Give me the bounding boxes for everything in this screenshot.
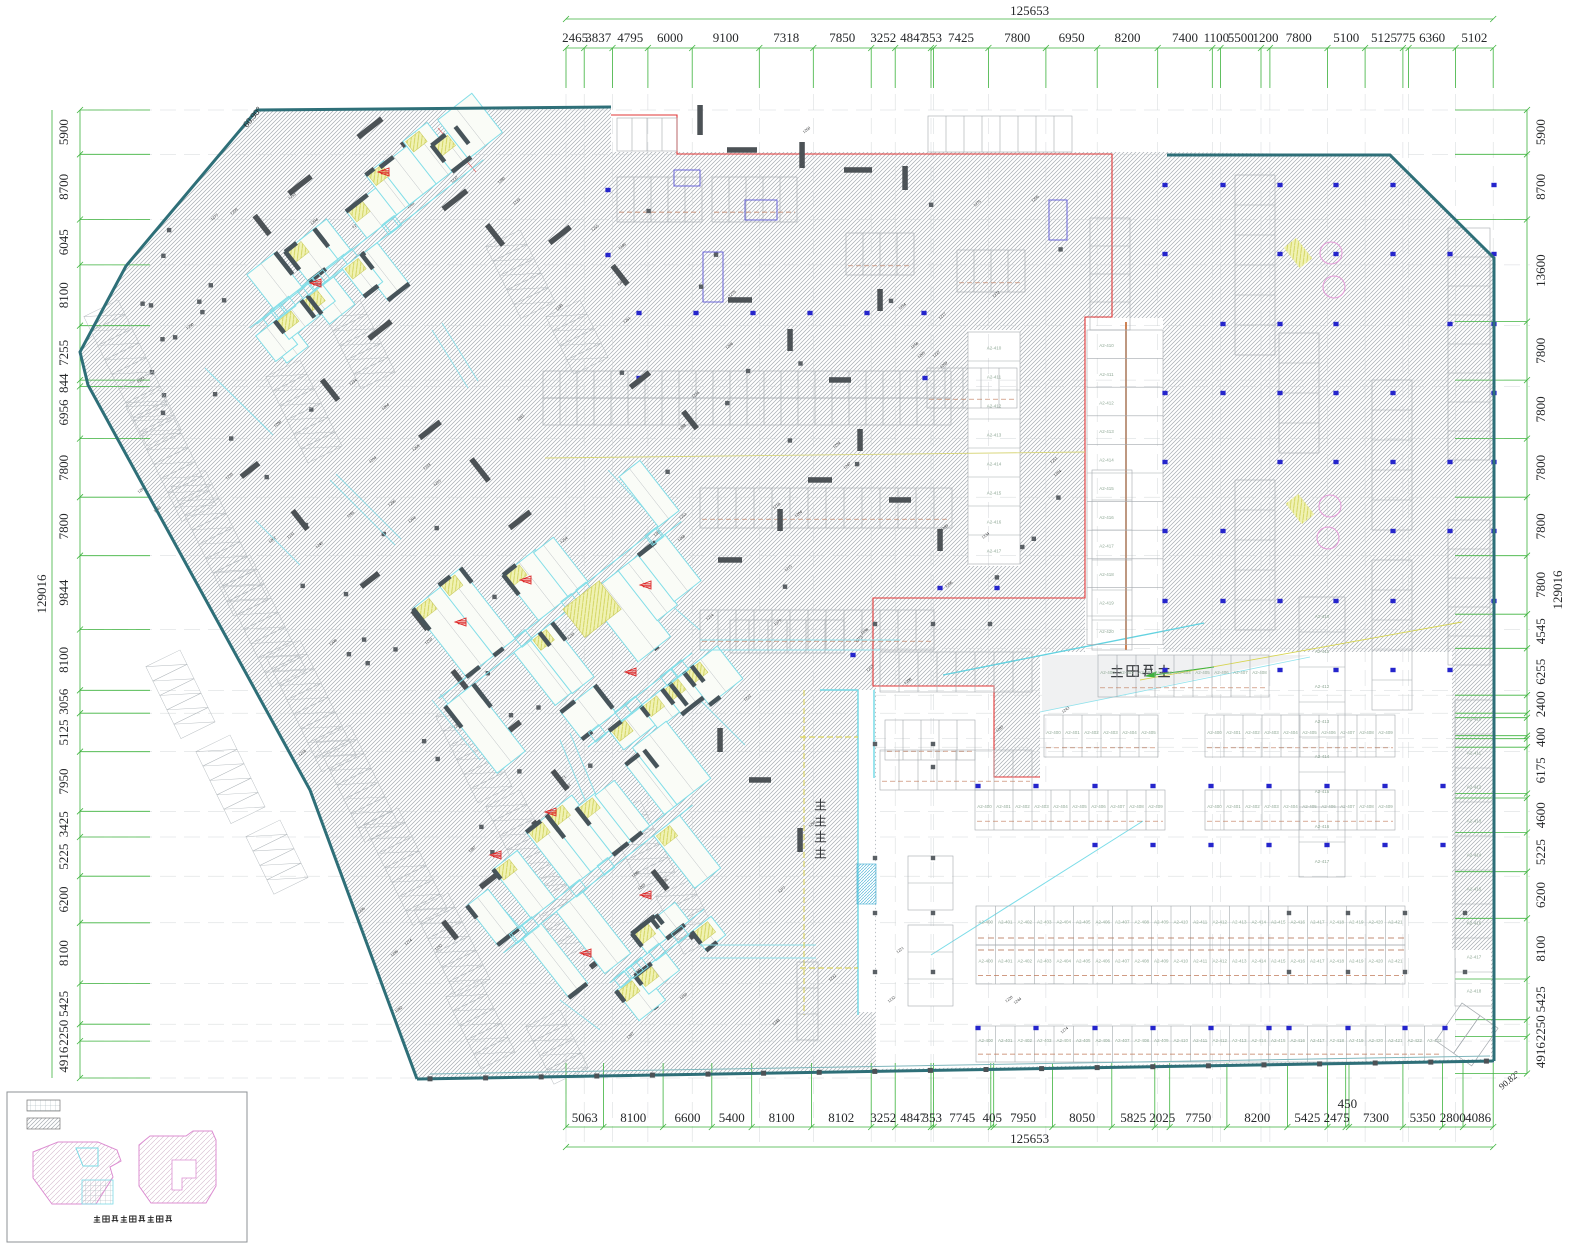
svg-text:A2-403: A2-403 bbox=[1034, 804, 1049, 809]
svg-text:5102: 5102 bbox=[1461, 30, 1487, 45]
svg-text:A2-412: A2-412 bbox=[1213, 1038, 1228, 1043]
svg-text:9100: 9100 bbox=[713, 30, 739, 45]
svg-text:A2-406: A2-406 bbox=[1321, 730, 1336, 735]
svg-text:5425: 5425 bbox=[1294, 1110, 1320, 1125]
svg-text:A2-412: A2-412 bbox=[1467, 784, 1482, 789]
svg-text:7300: 7300 bbox=[1363, 1110, 1389, 1125]
svg-text:A2-401: A2-401 bbox=[1226, 804, 1241, 809]
svg-text:A2-418: A2-418 bbox=[1467, 988, 1482, 993]
svg-text:A2-401: A2-401 bbox=[1065, 730, 1080, 735]
svg-text:A2-405: A2-405 bbox=[1076, 920, 1091, 925]
svg-text:8100: 8100 bbox=[56, 940, 71, 966]
svg-text:1100: 1100 bbox=[1204, 30, 1230, 45]
svg-text:A2-413: A2-413 bbox=[1467, 818, 1482, 823]
svg-text:7800: 7800 bbox=[1533, 338, 1548, 364]
svg-text:A2-414: A2-414 bbox=[1467, 852, 1482, 857]
svg-text:8100: 8100 bbox=[1533, 936, 1548, 962]
svg-text:A2-403: A2-403 bbox=[1037, 1038, 1052, 1043]
svg-text:A2-410: A2-410 bbox=[1174, 959, 1189, 964]
svg-text:A2-413: A2-413 bbox=[1315, 719, 1330, 724]
svg-text:5900: 5900 bbox=[1533, 119, 1548, 145]
svg-text:129016: 129016 bbox=[1550, 570, 1565, 610]
svg-text:A2-416: A2-416 bbox=[1467, 920, 1482, 925]
svg-text:A2-413: A2-413 bbox=[1232, 1038, 1247, 1043]
svg-text:7425: 7425 bbox=[948, 30, 974, 45]
svg-text:A2-412: A2-412 bbox=[1315, 684, 1330, 689]
svg-text:4916: 4916 bbox=[1533, 1042, 1548, 1069]
svg-text:A2-404: A2-404 bbox=[1057, 959, 1072, 964]
svg-text:A2-415: A2-415 bbox=[1271, 959, 1286, 964]
svg-text:A2-402: A2-402 bbox=[1245, 730, 1260, 735]
svg-text:6175: 6175 bbox=[1533, 757, 1548, 783]
svg-text:A2-416: A2-416 bbox=[1099, 515, 1114, 520]
svg-text:A2-405: A2-405 bbox=[1302, 804, 1317, 809]
svg-text:A2-406: A2-406 bbox=[1214, 670, 1229, 675]
svg-text:5125: 5125 bbox=[1371, 30, 1397, 45]
svg-text:A2-410: A2-410 bbox=[987, 345, 1002, 350]
svg-text:A2-419: A2-419 bbox=[1349, 1038, 1364, 1043]
svg-text:A2-402: A2-402 bbox=[1245, 804, 1260, 809]
svg-text:4545: 4545 bbox=[1533, 618, 1548, 644]
svg-text:125653: 125653 bbox=[1010, 3, 1049, 18]
svg-text:A2-417: A2-417 bbox=[1315, 859, 1330, 864]
svg-text:A2-404: A2-404 bbox=[1053, 804, 1068, 809]
svg-text:A2-420: A2-420 bbox=[1369, 920, 1384, 925]
svg-text:A2-405: A2-405 bbox=[1302, 730, 1317, 735]
svg-text:6200: 6200 bbox=[1533, 882, 1548, 908]
svg-text:7800: 7800 bbox=[1533, 572, 1548, 598]
svg-text:A2-401: A2-401 bbox=[996, 804, 1011, 809]
svg-text:2800: 2800 bbox=[1440, 1110, 1466, 1125]
svg-text:A2-413: A2-413 bbox=[1232, 920, 1247, 925]
svg-text:7800: 7800 bbox=[1286, 30, 1312, 45]
svg-text:A2-419: A2-419 bbox=[1349, 959, 1364, 964]
svg-text:5100: 5100 bbox=[1333, 30, 1359, 45]
svg-text:A2-410: A2-410 bbox=[1467, 716, 1482, 721]
svg-text:775: 775 bbox=[1396, 30, 1416, 45]
svg-text:A2-416: A2-416 bbox=[1291, 959, 1306, 964]
svg-text:A2-400: A2-400 bbox=[1207, 730, 1222, 735]
svg-text:7800: 7800 bbox=[1533, 396, 1548, 422]
svg-text:A2-417: A2-417 bbox=[987, 548, 1002, 553]
svg-text:A2-423: A2-423 bbox=[1427, 1038, 1442, 1043]
svg-text:8200: 8200 bbox=[1244, 1110, 1270, 1125]
svg-text:A2-416: A2-416 bbox=[987, 519, 1002, 524]
svg-text:6255: 6255 bbox=[1533, 659, 1548, 685]
svg-text:6000: 6000 bbox=[657, 30, 683, 45]
svg-text:A2-412: A2-412 bbox=[1213, 920, 1228, 925]
svg-text:A2-405: A2-405 bbox=[1076, 959, 1091, 964]
svg-text:7950: 7950 bbox=[1010, 1110, 1036, 1125]
svg-text:A2-407: A2-407 bbox=[1115, 959, 1130, 964]
svg-text:353: 353 bbox=[923, 1110, 943, 1125]
svg-text:5225: 5225 bbox=[1533, 839, 1548, 865]
svg-text:A2-404: A2-404 bbox=[1057, 1038, 1072, 1043]
svg-text:A2-405: A2-405 bbox=[1195, 670, 1210, 675]
svg-text:7745: 7745 bbox=[949, 1110, 975, 1125]
svg-text:A2-408: A2-408 bbox=[1252, 670, 1267, 675]
svg-text:A2-404: A2-404 bbox=[1122, 730, 1137, 735]
svg-text:A2-415: A2-415 bbox=[1315, 789, 1330, 794]
svg-text:5425: 5425 bbox=[1533, 986, 1548, 1012]
svg-text:7950: 7950 bbox=[56, 769, 71, 795]
svg-text:5400: 5400 bbox=[719, 1110, 745, 1125]
svg-text:A2-408: A2-408 bbox=[1129, 804, 1144, 809]
svg-text:A2-406: A2-406 bbox=[1096, 1038, 1111, 1043]
svg-text:A2-405: A2-405 bbox=[1141, 730, 1156, 735]
svg-text:A2-402: A2-402 bbox=[1018, 920, 1033, 925]
svg-text:A2-417: A2-417 bbox=[1467, 954, 1482, 959]
svg-text:A2-400: A2-400 bbox=[979, 920, 994, 925]
svg-text:2250: 2250 bbox=[56, 1020, 71, 1046]
svg-text:4086: 4086 bbox=[1465, 1110, 1492, 1125]
svg-text:A2-420: A2-420 bbox=[1369, 1038, 1384, 1043]
svg-text:6956: 6956 bbox=[56, 399, 71, 426]
svg-text:3425: 3425 bbox=[56, 811, 71, 837]
svg-text:A2-409: A2-409 bbox=[1154, 1038, 1169, 1043]
svg-text:6200: 6200 bbox=[56, 887, 71, 913]
svg-text:8102: 8102 bbox=[828, 1110, 854, 1125]
svg-text:A2-405: A2-405 bbox=[1076, 1038, 1091, 1043]
svg-text:5425: 5425 bbox=[56, 991, 71, 1017]
svg-text:8200: 8200 bbox=[1115, 30, 1141, 45]
svg-text:A2-407: A2-407 bbox=[1115, 920, 1130, 925]
svg-text:A2-402: A2-402 bbox=[1015, 804, 1030, 809]
svg-text:6045: 6045 bbox=[56, 229, 71, 255]
svg-text:125653: 125653 bbox=[1010, 1131, 1049, 1146]
svg-text:A2-402: A2-402 bbox=[1084, 730, 1099, 735]
svg-text:A2-421: A2-421 bbox=[1388, 959, 1403, 964]
svg-text:A2-411: A2-411 bbox=[1315, 649, 1330, 654]
svg-text:A2-400: A2-400 bbox=[979, 1038, 994, 1043]
svg-text:A2-414: A2-414 bbox=[1315, 754, 1330, 759]
svg-text:3252: 3252 bbox=[870, 1110, 896, 1125]
svg-text:A2-420: A2-420 bbox=[1099, 629, 1114, 634]
svg-text:6950: 6950 bbox=[1059, 30, 1085, 45]
svg-text:7850: 7850 bbox=[829, 30, 855, 45]
svg-text:A2-410: A2-410 bbox=[1099, 343, 1114, 348]
svg-text:8050: 8050 bbox=[1069, 1110, 1095, 1125]
svg-text:A2-408: A2-408 bbox=[1359, 730, 1374, 735]
svg-text:8100: 8100 bbox=[769, 1110, 795, 1125]
svg-text:A2-419: A2-419 bbox=[1099, 601, 1114, 606]
svg-text:A2-415: A2-415 bbox=[987, 490, 1002, 495]
svg-text:6600: 6600 bbox=[675, 1110, 701, 1125]
svg-text:A2-404: A2-404 bbox=[1283, 730, 1298, 735]
svg-text:4795: 4795 bbox=[617, 30, 643, 45]
svg-text:4600: 4600 bbox=[1533, 802, 1548, 828]
svg-text:A2-407: A2-407 bbox=[1340, 730, 1355, 735]
svg-text:A2-403: A2-403 bbox=[1264, 804, 1279, 809]
svg-text:7255: 7255 bbox=[56, 340, 71, 366]
svg-text:A2-414: A2-414 bbox=[987, 461, 1002, 466]
svg-text:A2-401: A2-401 bbox=[998, 959, 1013, 964]
svg-text:A2-410: A2-410 bbox=[1174, 920, 1189, 925]
svg-text:A2-409: A2-409 bbox=[1148, 804, 1163, 809]
svg-text:A2-407: A2-407 bbox=[1115, 1038, 1130, 1043]
svg-text:A2-406: A2-406 bbox=[1091, 804, 1106, 809]
svg-text:3837: 3837 bbox=[585, 30, 612, 45]
svg-text:A2-411: A2-411 bbox=[1193, 1038, 1208, 1043]
svg-text:A2-407: A2-407 bbox=[1110, 804, 1125, 809]
svg-text:A2-404: A2-404 bbox=[1176, 670, 1191, 675]
svg-text:8100: 8100 bbox=[56, 282, 71, 308]
svg-text:A2-405: A2-405 bbox=[1072, 804, 1087, 809]
svg-text:A2-408: A2-408 bbox=[1135, 959, 1150, 964]
svg-text:A2-417: A2-417 bbox=[1310, 1038, 1325, 1043]
svg-text:A2-415: A2-415 bbox=[1099, 486, 1114, 491]
svg-text:A2-416: A2-416 bbox=[1291, 920, 1306, 925]
svg-text:5500: 5500 bbox=[1228, 30, 1254, 45]
svg-text:A2-418: A2-418 bbox=[1099, 572, 1114, 577]
svg-text:7800: 7800 bbox=[56, 455, 71, 481]
svg-text:7800: 7800 bbox=[1533, 513, 1548, 539]
svg-text:8100: 8100 bbox=[56, 647, 71, 673]
svg-text:5125: 5125 bbox=[56, 720, 71, 746]
svg-text:A2-412: A2-412 bbox=[987, 403, 1002, 408]
svg-text:A2-418: A2-418 bbox=[1330, 959, 1345, 964]
svg-text:A2-409: A2-409 bbox=[1154, 920, 1169, 925]
svg-text:A2-406: A2-406 bbox=[1096, 920, 1111, 925]
svg-text:7800: 7800 bbox=[1533, 455, 1548, 481]
svg-text:A2-411: A2-411 bbox=[1099, 372, 1114, 377]
svg-text:A2-401: A2-401 bbox=[1226, 730, 1241, 735]
svg-text:A2-410: A2-410 bbox=[1174, 1038, 1189, 1043]
svg-text:A2-404: A2-404 bbox=[1057, 920, 1072, 925]
svg-text:5063: 5063 bbox=[572, 1110, 598, 1125]
svg-text:3252: 3252 bbox=[870, 30, 896, 45]
svg-text:5350: 5350 bbox=[1410, 1110, 1436, 1125]
svg-text:A2-416: A2-416 bbox=[1291, 1038, 1306, 1043]
svg-text:2400: 2400 bbox=[1533, 691, 1548, 717]
svg-text:A2-404: A2-404 bbox=[1283, 804, 1298, 809]
svg-text:A2-402: A2-402 bbox=[1138, 670, 1153, 675]
svg-text:A2-408: A2-408 bbox=[1135, 1038, 1150, 1043]
svg-text:A2-411: A2-411 bbox=[987, 374, 1002, 379]
svg-text:A2-408: A2-408 bbox=[1135, 920, 1150, 925]
svg-text:A2-414: A2-414 bbox=[1252, 1038, 1267, 1043]
svg-text:3056: 3056 bbox=[56, 688, 71, 715]
svg-text:5825: 5825 bbox=[1120, 1110, 1146, 1125]
svg-text:A2-420: A2-420 bbox=[1369, 959, 1384, 964]
svg-text:A2-400: A2-400 bbox=[977, 804, 992, 809]
svg-text:4916: 4916 bbox=[56, 1046, 71, 1073]
svg-text:A2-415: A2-415 bbox=[1271, 1038, 1286, 1043]
svg-text:844: 844 bbox=[56, 373, 71, 393]
svg-text:A2-415: A2-415 bbox=[1467, 886, 1482, 891]
svg-text:A2-403: A2-403 bbox=[1037, 959, 1052, 964]
svg-text:A2-417: A2-417 bbox=[1310, 959, 1325, 964]
svg-text:A2-400: A2-400 bbox=[1100, 670, 1115, 675]
svg-text:A2-412: A2-412 bbox=[1213, 959, 1228, 964]
svg-text:A2-407: A2-407 bbox=[1233, 670, 1248, 675]
svg-text:A2-418: A2-418 bbox=[1330, 1038, 1345, 1043]
svg-text:A2-400: A2-400 bbox=[1207, 804, 1222, 809]
svg-text:A2-403: A2-403 bbox=[1264, 730, 1279, 735]
svg-text:7800: 7800 bbox=[56, 513, 71, 539]
svg-text:A2-415: A2-415 bbox=[1271, 920, 1286, 925]
svg-text:13600: 13600 bbox=[1533, 254, 1548, 287]
svg-text:353: 353 bbox=[923, 30, 943, 45]
svg-text:A2-414: A2-414 bbox=[1099, 458, 1114, 463]
svg-text:A2-422: A2-422 bbox=[1408, 1038, 1423, 1043]
svg-text:A2-401: A2-401 bbox=[998, 920, 1013, 925]
svg-text:A2-408: A2-408 bbox=[1359, 804, 1374, 809]
svg-text:2025: 2025 bbox=[1149, 1110, 1175, 1125]
svg-text:A2-411: A2-411 bbox=[1193, 959, 1208, 964]
svg-text:A2-407: A2-407 bbox=[1340, 804, 1355, 809]
svg-text:7400: 7400 bbox=[1172, 30, 1198, 45]
svg-text:A2-421: A2-421 bbox=[1388, 920, 1403, 925]
svg-text:9844: 9844 bbox=[56, 579, 71, 606]
svg-text:A2-414: A2-414 bbox=[1252, 959, 1267, 964]
svg-text:A2-401: A2-401 bbox=[998, 1038, 1013, 1043]
svg-text:1200: 1200 bbox=[1253, 30, 1279, 45]
svg-text:129016: 129016 bbox=[34, 574, 49, 614]
svg-text:7750: 7750 bbox=[1185, 1110, 1211, 1125]
svg-text:8700: 8700 bbox=[56, 174, 71, 200]
svg-text:A2-409: A2-409 bbox=[1378, 804, 1393, 809]
svg-text:A2-410: A2-410 bbox=[1315, 614, 1330, 619]
svg-text:A2-403: A2-403 bbox=[1037, 920, 1052, 925]
svg-text:A2-406: A2-406 bbox=[1321, 804, 1336, 809]
svg-text:A2-400: A2-400 bbox=[1046, 730, 1061, 735]
svg-text:A2-406: A2-406 bbox=[1096, 959, 1111, 964]
svg-text:A2-409: A2-409 bbox=[1154, 959, 1169, 964]
svg-text:6360: 6360 bbox=[1419, 30, 1445, 45]
svg-text:A2-416: A2-416 bbox=[1315, 824, 1330, 829]
svg-text:A2-401: A2-401 bbox=[1119, 670, 1134, 675]
svg-text:A2-414: A2-414 bbox=[1252, 920, 1267, 925]
svg-text:405: 405 bbox=[982, 1110, 1002, 1125]
svg-text:5225: 5225 bbox=[56, 844, 71, 870]
svg-text:A2-402: A2-402 bbox=[1018, 959, 1033, 964]
svg-text:450: 450 bbox=[1338, 1096, 1358, 1111]
svg-text:7800: 7800 bbox=[1004, 30, 1030, 45]
svg-text:A2-411: A2-411 bbox=[1193, 920, 1208, 925]
svg-text:2250: 2250 bbox=[1533, 1015, 1548, 1041]
svg-text:A2-417: A2-417 bbox=[1099, 543, 1114, 548]
svg-text:A2-413: A2-413 bbox=[1232, 959, 1247, 964]
svg-text:A2-400: A2-400 bbox=[979, 959, 994, 964]
svg-text:7318: 7318 bbox=[773, 30, 799, 45]
svg-text:400: 400 bbox=[1533, 727, 1548, 747]
svg-text:A2-412: A2-412 bbox=[1099, 400, 1114, 405]
svg-text:A2-418: A2-418 bbox=[1330, 920, 1345, 925]
svg-text:8700: 8700 bbox=[1533, 174, 1548, 200]
svg-text:A2-411: A2-411 bbox=[1467, 750, 1482, 755]
svg-text:A2-419: A2-419 bbox=[1349, 920, 1364, 925]
svg-text:5900: 5900 bbox=[56, 119, 71, 145]
svg-text:A2-421: A2-421 bbox=[1388, 1038, 1403, 1043]
svg-text:A2-402: A2-402 bbox=[1018, 1038, 1033, 1043]
svg-text:A2-417: A2-417 bbox=[1310, 920, 1325, 925]
svg-text:A2-403: A2-403 bbox=[1103, 730, 1118, 735]
svg-text:A2-413: A2-413 bbox=[1099, 429, 1114, 434]
svg-text:8100: 8100 bbox=[620, 1110, 646, 1125]
svg-text:2465: 2465 bbox=[562, 30, 588, 45]
svg-text:A2-413: A2-413 bbox=[987, 432, 1002, 437]
svg-text:2475: 2475 bbox=[1324, 1110, 1350, 1125]
svg-text:A2-409: A2-409 bbox=[1378, 730, 1393, 735]
